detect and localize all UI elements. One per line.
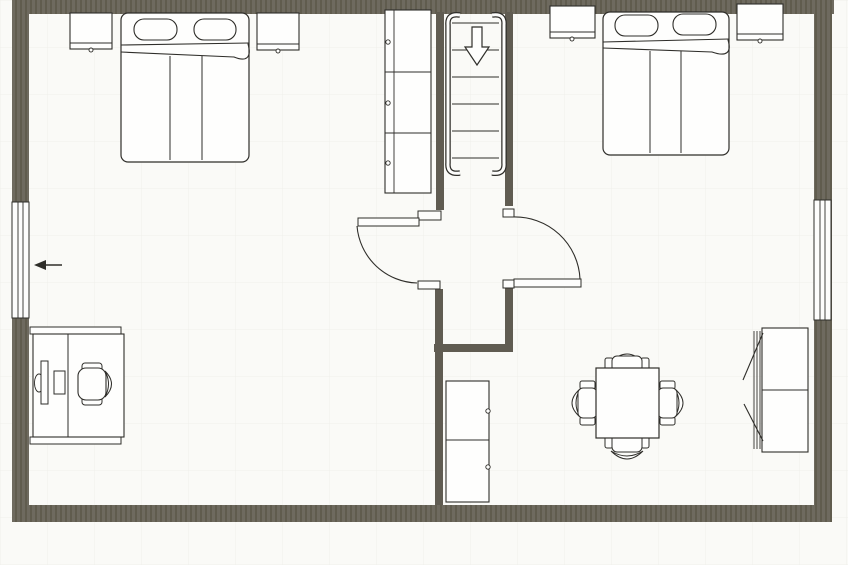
wall-bottom <box>12 505 832 522</box>
window-left <box>12 202 29 318</box>
door-jamb <box>503 209 514 217</box>
double-bed <box>603 12 729 155</box>
hall-wall-left-upper <box>436 12 444 210</box>
door-leaf <box>514 279 581 287</box>
room-divider-wall <box>435 352 443 505</box>
pillow <box>673 14 716 35</box>
hall-wall-right-lower <box>505 288 513 345</box>
dining-table <box>596 368 659 438</box>
nightstand <box>737 4 783 43</box>
keyboard <box>54 371 65 394</box>
nightstand <box>550 6 595 41</box>
pillow <box>615 15 658 36</box>
knob <box>486 465 490 469</box>
floor-plan-viewer <box>0 0 848 565</box>
knob <box>486 409 490 413</box>
monitor <box>41 361 48 404</box>
door-jamb <box>418 211 441 220</box>
double-bed <box>121 13 249 162</box>
door-jamb <box>503 280 514 288</box>
door-jamb <box>418 281 440 289</box>
knob <box>386 40 390 44</box>
nightstand <box>257 13 299 53</box>
low-cabinet <box>446 381 490 502</box>
hall-wall-left-lower <box>435 289 443 345</box>
pillow <box>194 19 236 40</box>
knob <box>386 161 390 165</box>
nightstand <box>70 13 112 52</box>
knob <box>386 101 390 105</box>
door-leaf <box>358 218 419 226</box>
window-right <box>814 200 831 320</box>
hall-wall-bottom <box>434 344 513 352</box>
floor-plan-drawing <box>0 0 848 565</box>
pillow <box>134 19 177 40</box>
tall-cabinet <box>385 10 431 193</box>
